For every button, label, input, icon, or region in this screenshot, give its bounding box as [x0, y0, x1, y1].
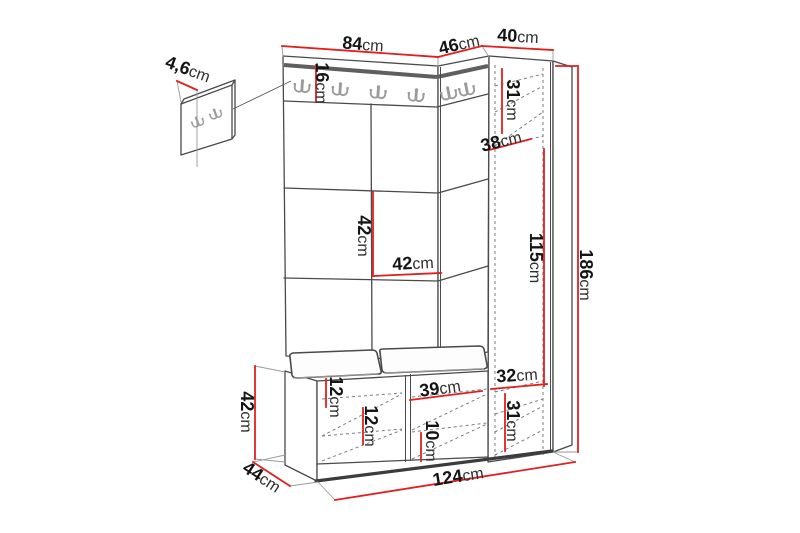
dim-label-corner-panel-width: 46cm — [437, 30, 482, 59]
dim-label-wardrobe-bottom-height: 31cm — [503, 400, 523, 441]
dim-label-bench-height: 42cm — [237, 391, 257, 432]
bench-cushion-right — [380, 346, 487, 373]
dim-label-wall-panel-depth: 4,6cm — [163, 52, 213, 87]
dim-label-total-height: 186cm — [576, 249, 596, 300]
dim-label-bench-shelf-bottom: 12cm — [361, 405, 381, 446]
dim-label-hook-rail-height: 16cm — [312, 62, 332, 103]
bench-left-face — [285, 371, 317, 481]
bench-cushion-left — [290, 350, 381, 378]
dim-label-hanging-height: 115cm — [526, 233, 546, 283]
bench-height-extensions — [255, 366, 285, 462]
dim-line-wall-panel-depth — [177, 81, 197, 90]
dim-label-wardrobe-bottom-width: 32cm — [496, 364, 539, 387]
wall-panel-outline — [181, 80, 235, 155]
dim-label-bench-shelf-top: 12cm — [326, 376, 346, 417]
corner-panel-face — [438, 56, 489, 360]
dim-label-wardrobe-width: 40cm — [497, 25, 539, 47]
diagram-canvas: 4,6cm 84cm 46cm 40cm 16cm 31cm 38cm 42cm… — [0, 0, 800, 533]
dim-label-tile-height: 42cm — [354, 215, 374, 256]
corner-panel — [437, 56, 489, 360]
dim-label-hall-panel-width: 84cm — [342, 33, 385, 56]
panel-pointer-line — [233, 81, 291, 109]
dim-label-wardrobe-top-section: 31cm — [503, 79, 523, 120]
hall-panel — [283, 56, 438, 360]
furniture-dimension-diagram: 4,6cm 84cm 46cm 40cm 16cm 31cm 38cm 42cm… — [0, 0, 800, 533]
wardrobe-side-face — [553, 61, 572, 452]
dim-label-bench-depth: 44cm — [239, 457, 285, 496]
dim-line-wardrobe-width — [482, 46, 553, 50]
dim-label-right-shelf-height: 10cm — [422, 420, 442, 461]
wall-hook-panel — [181, 80, 291, 155]
dim-label-tile-width: 42cm — [392, 252, 434, 274]
